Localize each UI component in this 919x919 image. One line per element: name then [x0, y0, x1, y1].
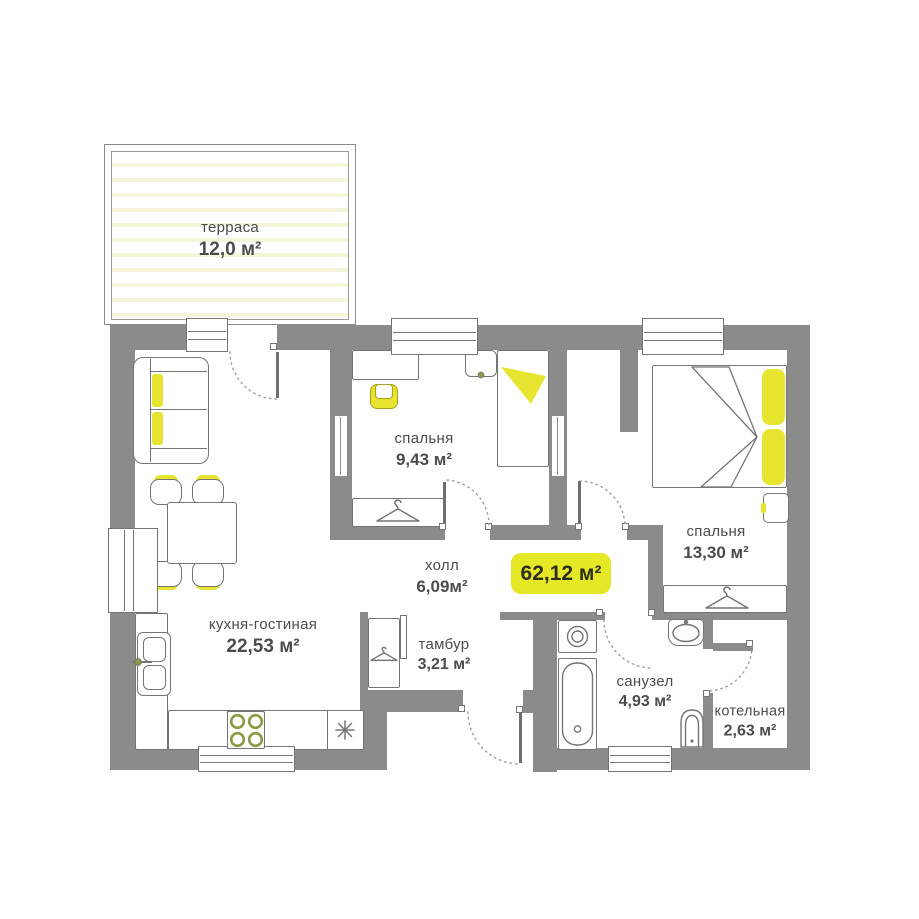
washing-machine [558, 620, 597, 653]
window [391, 318, 478, 355]
room-name: терраса [199, 219, 262, 236]
total-area-badge: 62,12 м² [511, 553, 611, 594]
window-glass-line [393, 340, 476, 341]
bathroom-sink [668, 619, 704, 646]
wall [523, 690, 557, 713]
sofa-armrest-line [151, 448, 207, 449]
sofa-back-line [150, 359, 151, 462]
wall [490, 525, 581, 540]
counter-divider [327, 711, 328, 749]
wall [277, 325, 810, 350]
room-name: холл [416, 557, 467, 574]
window [198, 746, 295, 772]
window-glass-line [200, 762, 293, 763]
door-hinge [575, 523, 582, 530]
entrance-door-leaf [519, 712, 522, 763]
bathroom-label: санузел 4,93 м² [616, 673, 673, 711]
kitchen-sink-basin [143, 665, 166, 690]
wardrobe [663, 585, 787, 613]
room-name: спальня [394, 430, 453, 447]
terrace-door-window [186, 318, 228, 352]
hall-label: холл 6,09м² [416, 557, 467, 597]
room-area: 2,63 м² [715, 723, 786, 741]
vestibule-label: тамбур 3,21 м² [418, 636, 471, 674]
boiler-label: котельная 2,63 м² [715, 704, 786, 741]
wall-niche-line [340, 417, 341, 475]
wall [620, 350, 638, 432]
window-glass-line [133, 530, 134, 611]
room-area: 22,53 м² [209, 636, 317, 658]
wall-niche-line [557, 417, 558, 475]
wall [110, 348, 135, 528]
room-name: спальня [683, 523, 749, 540]
wall [110, 613, 135, 770]
window-glass-line [610, 755, 670, 756]
door-hinge [270, 343, 277, 350]
sofa-seat-line [151, 409, 207, 410]
window-glass-line [200, 755, 293, 756]
wardrobe-side-panel [400, 615, 407, 659]
door-hinge [485, 523, 492, 530]
bedroom2-label: спальня 13,30 м² [683, 523, 749, 563]
door-hinge [439, 523, 446, 530]
toilet [681, 710, 703, 747]
bed-single [497, 350, 549, 467]
kitchen-sink-basin [143, 637, 166, 662]
pillow [762, 369, 785, 425]
terrace-door-arc [230, 352, 277, 399]
door-hinge [516, 706, 523, 713]
room-name: санузел [616, 673, 673, 690]
room-name: тамбур [418, 636, 471, 653]
dining-chair [192, 561, 224, 587]
door-hinge [596, 609, 603, 616]
wall [648, 533, 663, 615]
terrace-label: терраса 12,0 м² [199, 219, 262, 261]
window-glass-line [393, 332, 476, 333]
boiler-door-arc [707, 646, 752, 691]
room-name: котельная [715, 704, 786, 720]
wall [360, 690, 463, 712]
wardrobe [352, 498, 445, 527]
window-glass-line [124, 530, 125, 611]
window [608, 746, 672, 772]
room-area: 6,09м² [416, 577, 467, 597]
wall [330, 525, 445, 540]
window-glass-line [644, 340, 722, 341]
nightstand [763, 493, 789, 523]
sofa-cushion [152, 374, 163, 407]
door-hinge [648, 609, 655, 616]
window-glass-line [610, 762, 670, 763]
bedroom1-door-leaf [443, 482, 446, 527]
pillow [762, 429, 785, 485]
window-glass-line [188, 339, 226, 340]
wall [787, 348, 810, 770]
wall [360, 612, 368, 690]
desk-chair-seat [375, 384, 393, 399]
room-area: 13,30 м² [683, 543, 749, 563]
room-area: 3,21 м² [418, 656, 471, 674]
door-hinge [622, 523, 629, 530]
bedroom2-door-leaf [578, 481, 581, 527]
stove [227, 711, 265, 749]
bedroom2-door-arc [580, 481, 625, 525]
floor-plan: терраса 12,0 м² спальня 9,43 м² спальня … [0, 0, 919, 919]
bathroom-door-arc [604, 620, 652, 668]
kitchen-counter-bottom [168, 710, 364, 750]
wall [703, 693, 713, 750]
door-hinge [703, 690, 710, 697]
room-name: кухня-гостиная [209, 616, 317, 633]
bedroom1-label: спальня 9,43 м² [394, 430, 453, 470]
window-glass-line [644, 332, 722, 333]
room-area: 4,93 м² [616, 693, 673, 711]
room-area: 9,43 м² [394, 450, 453, 470]
nightstand-knob [761, 503, 766, 513]
wardrobe [368, 618, 400, 688]
entrance-door-arc [468, 712, 520, 764]
wall [110, 325, 186, 350]
door-hinge [458, 705, 465, 712]
wall [703, 618, 713, 649]
door-hinge [746, 640, 753, 647]
window-glass-line [188, 331, 226, 332]
terrace-door-leaf [276, 352, 279, 398]
sofa-armrest-line [151, 371, 207, 372]
kitchen-living-label: кухня-гостиная 22,53 м² [209, 616, 317, 658]
sofa-cushion [152, 412, 163, 445]
bathtub [558, 658, 597, 750]
dining-table [167, 502, 237, 564]
window [642, 318, 724, 355]
room-area: 12,0 м² [199, 239, 262, 261]
wall [535, 748, 810, 770]
bedroom1-door-arc [444, 480, 489, 525]
